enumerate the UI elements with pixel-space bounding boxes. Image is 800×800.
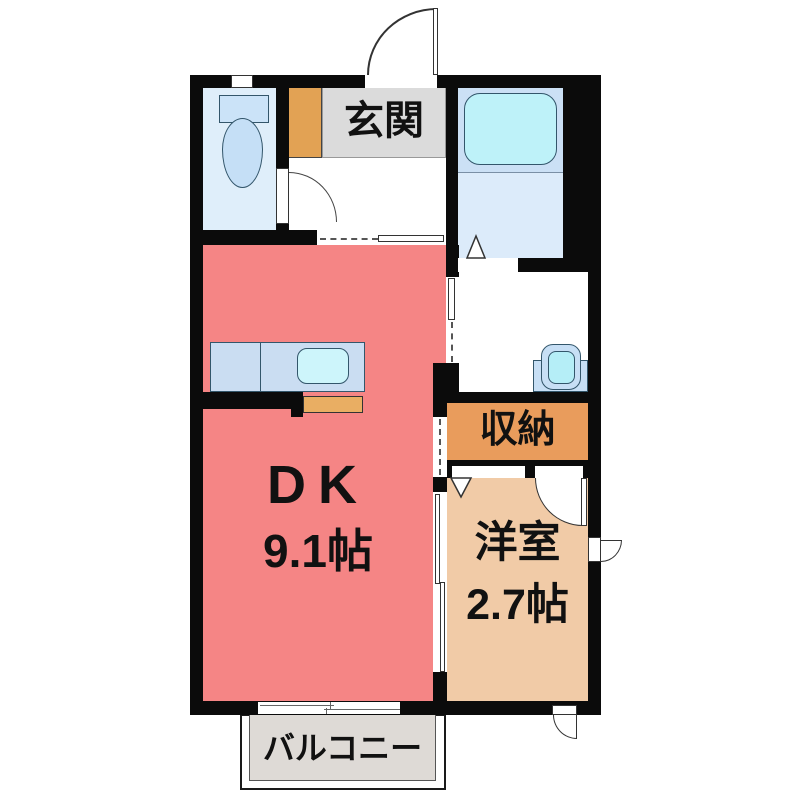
wall-genkan-bath [446, 87, 458, 258]
wall-right-bath-block [563, 75, 601, 272]
balcony-label: バルコニー [249, 732, 436, 764]
right-service-door-arc-icon [601, 540, 622, 562]
wall-jog [433, 363, 459, 392]
wall-toilet-upper [276, 87, 289, 168]
entrance-door-arc-icon [367, 8, 437, 75]
bathtub-icon [464, 93, 557, 165]
western-sliding-panel-2-icon [440, 582, 445, 672]
kitchen-cabinet [303, 396, 363, 413]
wall-right [588, 258, 601, 715]
washroom-sliding-door-track-icon [451, 322, 453, 362]
balcony-window-pane-right [324, 709, 400, 710]
counter-stub-post [291, 392, 303, 417]
western-sliding-panel-1-icon [435, 494, 440, 584]
genkan-label: 玄関 [322, 101, 446, 141]
balcony-window [258, 702, 400, 714]
bottom-service-door-opening [552, 705, 577, 715]
floor-plan: 玄関 DK 9.1帖 収納 洋室 2.7帖 バルコニー [0, 0, 800, 800]
wall-left [190, 75, 203, 715]
toilet-window [231, 75, 253, 88]
wall-dk-east-a [433, 403, 447, 417]
western-room-size-label: 2.7帖 [447, 584, 588, 627]
closet-label: 収納 [447, 411, 588, 449]
balcony-window-tick2 [326, 708, 327, 714]
shoe-cabinet [288, 87, 322, 158]
western-door-opening [535, 466, 583, 478]
kitchen-sink-icon [297, 348, 349, 384]
western-door-leaf-icon [581, 478, 587, 526]
wall-below-toilet [203, 230, 317, 245]
bath-folding-door-icon [458, 234, 494, 260]
balcony-window-tick [330, 702, 331, 709]
counter-stub-wall [203, 392, 291, 409]
bath-fold-opening [458, 258, 518, 272]
closet-side-dashed-icon [439, 419, 441, 475]
kitchen-counter-divider [260, 342, 261, 392]
hall-sliding-door-leaf-icon [378, 235, 444, 242]
wall-washroom-closet [433, 392, 588, 403]
entrance-door-leaf-icon [433, 8, 438, 75]
dk-label: DK [203, 458, 433, 512]
wall-dk-east-b [433, 477, 447, 492]
dk-size-label: 9.1帖 [203, 528, 433, 574]
closet-folding-door-icon [448, 476, 474, 500]
toilet-door-leaf-icon [276, 168, 289, 224]
wall-dk-east-c [433, 672, 447, 701]
bottom-service-door-arc-icon [553, 715, 577, 739]
vanity-bowl-icon [548, 351, 575, 384]
hall-sliding-door-track-icon [320, 238, 378, 240]
western-room-label: 洋室 [447, 522, 588, 565]
right-service-door-opening [588, 537, 601, 562]
balcony-window-pane-left [260, 705, 334, 706]
entrance-opening [365, 75, 437, 88]
washroom-sliding-door-leaf-icon [448, 278, 455, 320]
wall-bath-bottom-b [518, 258, 563, 272]
